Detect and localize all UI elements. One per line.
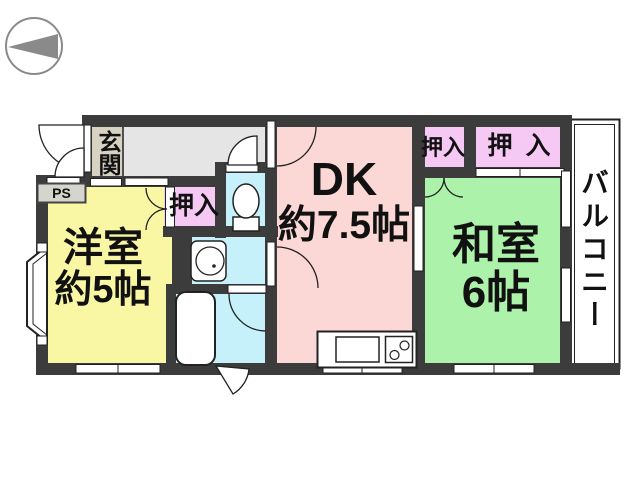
japanese-room-label: 和室 6帖 [424,221,568,316]
hallway-partition [125,178,168,186]
western-room-name: 洋室 [28,227,178,270]
japanese-room-size: 6帖 [424,269,568,317]
balcony-label: バルコニー [578,150,608,350]
pipe-space-label: PS [38,184,85,202]
stove-icon [386,337,413,363]
wall-segment [83,115,572,127]
dining-kitchen-name: DK [270,155,418,205]
bathtub-icon [176,292,215,365]
kitchen-counter [318,332,417,368]
japanese-room-name: 和室 [424,221,568,269]
closet-north-1-label: 押入 [419,136,467,160]
compass-icon [6,18,62,74]
bath-outer-door-swing [216,366,249,394]
western-room-label: 洋室 約5帖 [28,227,178,311]
closet-north-2-label: 押入 [472,133,566,160]
balcony-sliding-window [562,171,571,227]
toilet-icon [233,184,259,231]
bathroom-door-leaf [228,285,266,293]
dining-kitchen-size: 約7.5帖 [270,205,418,247]
washroom-door-leaf [267,242,275,286]
floor-plan-page: 玄関 PS 押入 洋室 約5帖 DK 約7.5帖 和室 6帖 押入 押入 バルコ… [0,0,640,480]
closet-west-label: 押入 [168,193,220,220]
washbasin-icon [191,241,226,281]
kitchen-sink [336,337,379,362]
western-room-size: 約5帖 [28,270,178,311]
dining-kitchen-label: DK 約7.5帖 [270,155,418,247]
entrance-label: 玄関 [92,124,120,182]
